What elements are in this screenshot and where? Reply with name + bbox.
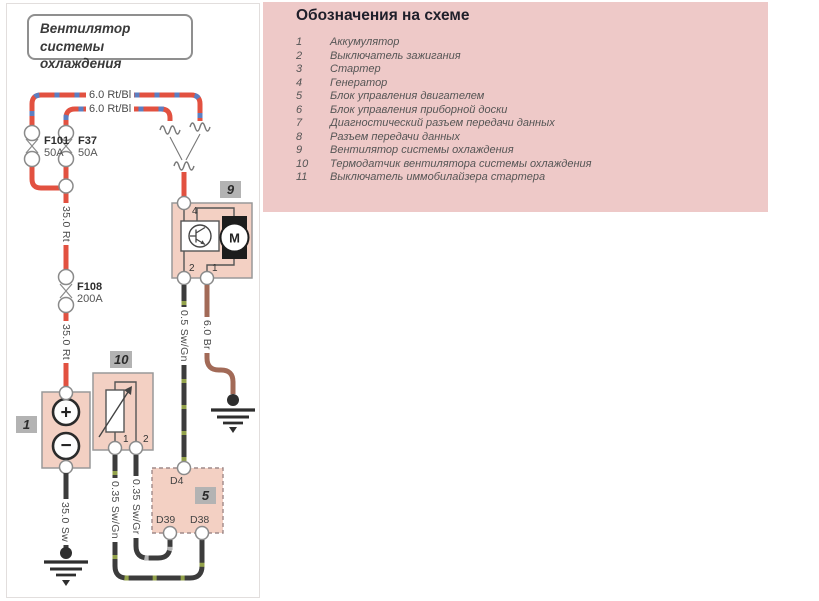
battery-badge: 1 <box>16 416 37 433</box>
legend-item: 4Генератор <box>296 77 592 91</box>
motor-symbol: M <box>221 216 249 259</box>
legend-item: 7Диагностический разъем передачи данных <box>296 117 592 131</box>
ground-symbol-battery <box>44 547 88 586</box>
thermo-sensor-badge: 10 <box>110 351 132 368</box>
wire-label-sensor-right: 0.35 Sw/Gr <box>129 476 143 538</box>
wire-label-fan-signal: 0.5 Sw/Gn <box>177 307 191 365</box>
transistor-symbol <box>181 221 219 251</box>
fan-pin2-label: 2 <box>189 263 195 274</box>
page: + − <box>0 0 819 601</box>
fuse-f108-symbol <box>58 270 74 313</box>
legend-items: 1Аккумулятор 2Выключатель зажигания 3Ста… <box>296 36 592 185</box>
diagram-title: Вентилятор системы охлаждения <box>29 16 191 73</box>
battery-plus-sign: + <box>60 403 71 424</box>
circuit-break-symbol <box>160 123 210 170</box>
fuse-f101-label: F101 50A <box>44 135 69 159</box>
wire-label-bus-upper: 35.0 Rt <box>59 203 73 245</box>
legend-panel: Обозначения на схеме 1Аккумулятор 2Выклю… <box>263 2 768 212</box>
wire-label-feed-top: 6.0 Rt/Bl <box>86 89 134 101</box>
engine-ecu-badge: 5 <box>195 487 216 504</box>
legend-item: 5Блок управления двигателем <box>296 90 592 104</box>
thermo-pin2-label: 2 <box>143 434 149 445</box>
ecu-pin-d38-label: D38 <box>190 514 209 526</box>
fuse-f37-label: F37 50A <box>78 135 98 159</box>
legend-item: 6Блок управления приборной доски <box>296 104 592 118</box>
wire-label-battery-ground: 35.0 Sw <box>58 499 72 545</box>
legend-title: Обозначения на схеме <box>296 7 470 25</box>
fan-pin1-label: 1 <box>212 263 218 274</box>
battery-minus-sign: − <box>60 436 71 457</box>
fan-module-badge: 9 <box>220 181 241 198</box>
wire-junction <box>59 179 73 193</box>
wire-label-feed-bottom: 6.0 Rt/Bl <box>86 103 134 115</box>
thermo-pin1-label: 1 <box>123 434 129 445</box>
legend-item: 3Стартер <box>296 63 592 77</box>
legend-item: 1Аккумулятор <box>296 36 592 50</box>
ecu-pin-d4-label: D4 <box>170 475 183 487</box>
ground-symbol-fan <box>211 394 255 433</box>
fuse-f108-label: F108 200A <box>77 281 103 305</box>
legend-item: 8Разъем передачи данных <box>296 131 592 145</box>
fuse-f101-symbol <box>25 126 40 167</box>
ecu-pin-d39-label: D39 <box>156 514 175 526</box>
battery-component: + − <box>42 387 90 474</box>
legend-item: 9Вентилятор системы охлаждения <box>296 144 592 158</box>
wire-label-sensor-left: 0.35 Sw/Gn <box>108 478 122 542</box>
legend-item: 11Выключатель иммобилайзера стартера <box>296 171 592 185</box>
wire-label-bus-lower: 35.0 Rt <box>59 321 73 363</box>
wire-label-fan-ground: 6.0 Br <box>200 317 214 353</box>
fan-pin4-label: 4 <box>192 206 198 217</box>
motor-letter: M <box>229 231 240 246</box>
legend-item: 2Выключатель зажигания <box>296 50 592 64</box>
legend-item: 10Термодатчик вентилятора системы охлажд… <box>296 158 592 172</box>
diagram-title-box: Вентилятор системы охлаждения <box>27 14 193 60</box>
